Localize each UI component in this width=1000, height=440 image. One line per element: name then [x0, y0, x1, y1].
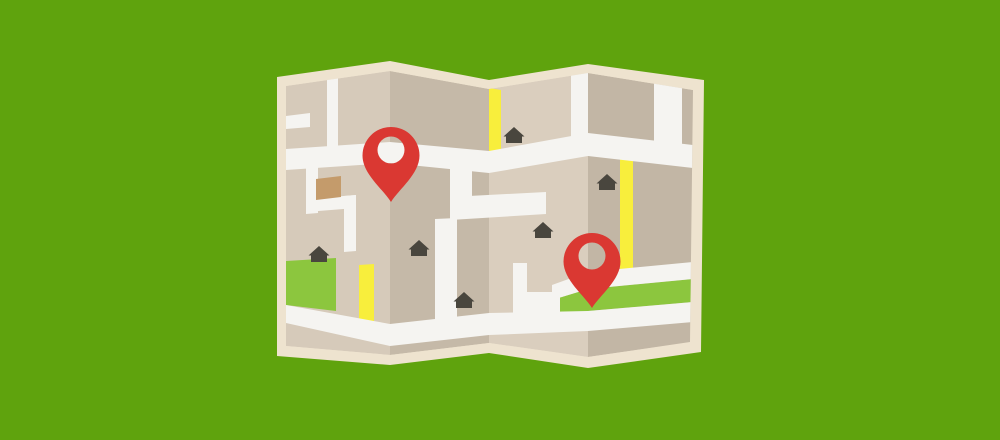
park-panel1	[286, 258, 336, 311]
road-panel1-top-vertical	[327, 76, 338, 150]
folded-map-illustration	[0, 0, 1000, 440]
road-panel4-top-vertical	[654, 80, 682, 147]
road-panel2-lower-vertical	[435, 218, 457, 329]
yellow-road-panel1	[359, 264, 374, 323]
map-banner-illustration	[0, 0, 1000, 440]
yellow-road-panel4	[620, 158, 633, 275]
yellow-road-panel3-top	[489, 88, 501, 155]
road-panel3-top-vertical	[571, 72, 588, 139]
building-block	[316, 176, 341, 200]
road-panel1-grid-vertical-b	[344, 195, 356, 252]
map-face	[286, 71, 693, 357]
road-panel2-connector-vertical	[450, 162, 472, 201]
